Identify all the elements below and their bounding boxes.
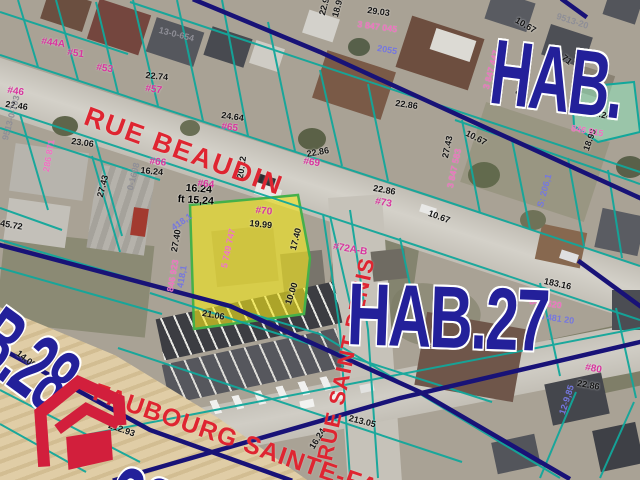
map-annotation: 27.43 [96, 174, 110, 198]
map-annotation: 10.00 [284, 282, 300, 306]
map-annotation: 5 481 20 [539, 312, 575, 326]
street-name-label: RUE SAINT-DENIS [314, 256, 379, 463]
map-annotation: S: 206,1 [536, 173, 554, 208]
building [612, 290, 640, 330]
map-annotation: 3 847 447 [482, 49, 501, 90]
red-house-logo [24, 370, 136, 470]
building [573, 65, 615, 101]
building [249, 40, 285, 72]
map-annotation: 10.67 [464, 129, 488, 147]
map-annotation: 14.09 [14, 349, 37, 370]
map-annotation: 23.06 [71, 137, 95, 149]
map-annotation: 22.46 [5, 100, 29, 112]
map-annotation: 29.03 [367, 6, 391, 18]
map-annotation: 16.24 [140, 166, 163, 177]
vehicle [559, 249, 579, 263]
tree [520, 210, 546, 230]
road-rue-saint-denis [328, 194, 403, 480]
map-annotation: 10.67 [427, 209, 451, 225]
map-annotation: 418,1 [176, 265, 189, 289]
vehicle [254, 182, 282, 201]
zone-label: HAB.27 [346, 270, 550, 365]
map-annotation: #73 [374, 197, 392, 210]
building [484, 0, 535, 32]
map-annotation: 2055 [376, 44, 397, 56]
map-annotation: 10.19 [514, 73, 531, 97]
map-annotation: 27.40 [170, 229, 183, 253]
building [9, 143, 89, 201]
map-annotation: 45.72 [0, 219, 23, 232]
ground-patch [0, 230, 154, 337]
map-annotation: 15.24 [588, 108, 612, 121]
map-annotation: 19.99 [249, 219, 272, 230]
building [211, 225, 279, 287]
map-annotation: 183.16 [543, 277, 572, 292]
map-annotation: 5 749 747 [220, 228, 237, 269]
map-annotation: 22.74 [145, 71, 168, 82]
map-annotation: 16.24 [308, 427, 328, 451]
logo-inner-body [66, 430, 113, 470]
map-annotation: 846 915 [570, 124, 604, 139]
tree [52, 116, 78, 136]
building [544, 372, 609, 425]
building [541, 24, 593, 68]
map-annotation: 21.06 [201, 309, 225, 322]
building [535, 224, 587, 269]
map-annotation: 418,1 [170, 212, 194, 232]
building [312, 50, 396, 120]
map-annotation: 9513-0-703 [1, 95, 22, 142]
map-annotation: 847 620 [529, 297, 562, 310]
map-annotation: #69 [303, 157, 321, 169]
logo-inner-roof [56, 406, 118, 429]
map-annotation: 16.24 [185, 183, 212, 195]
ground-patch [460, 102, 610, 222]
map-annotation: 10.67 [514, 16, 538, 35]
building [594, 208, 640, 256]
building [203, 26, 252, 68]
map-annotation: 12-9,85 [558, 384, 576, 416]
map-annotation: 286 871 [42, 139, 57, 173]
building [3, 198, 70, 248]
tree [348, 38, 370, 56]
map-annotation: #44A [41, 37, 66, 50]
tree [468, 162, 500, 188]
map-annotation: 0-1608 [126, 162, 142, 191]
building [40, 0, 92, 32]
map-annotation: ft 15,24 [177, 194, 214, 207]
map-annotation: 3 847 583 [446, 148, 463, 189]
zone-label: HAB. [486, 26, 628, 133]
map-annotation: 18.91 [331, 0, 346, 18]
map-annotation: 13-0-654 [158, 26, 195, 43]
map-annotation: #46 [7, 86, 25, 98]
building [87, 0, 151, 55]
red-truck [130, 207, 149, 237]
map-annotation: 24.64 [221, 111, 245, 123]
highlighted-parcel [190, 195, 310, 329]
map-annotation: #53 [96, 63, 114, 75]
tree [616, 156, 640, 178]
vehicle [257, 174, 276, 188]
ground-patch [385, 278, 484, 355]
road-faubourg-sainte-famille [55, 314, 640, 480]
building [280, 250, 326, 294]
map-annotation: 22.86 [372, 184, 396, 197]
map-annotation: #66 [149, 157, 167, 169]
ground-patch [324, 231, 420, 334]
building [146, 17, 205, 67]
street-name-label: FAUBOURG SAINTE-FAMILLE [90, 380, 457, 480]
map-annotation: #51 [67, 48, 85, 60]
cadastral-map: 22.4623.0622.7424.6429.0322.9518.9110.67… [0, 0, 640, 480]
map-annotation: 22.86 [576, 379, 600, 392]
vehicle [299, 399, 314, 410]
strip-mall-roof [156, 282, 343, 361]
map-annotation: 9513-20 [555, 12, 589, 31]
parking-lot [162, 328, 344, 404]
map-annotation: 27.43 [441, 135, 454, 159]
map-annotation: #65 [221, 122, 239, 134]
map-annotation: 22.86 [306, 146, 330, 159]
map-annotation: #80 [584, 363, 602, 376]
map-annotation: #72A-B [332, 242, 368, 258]
map-annotation: #64 [197, 179, 215, 191]
map-annotation: #57 [145, 84, 163, 96]
map-annotation: 17.40 [289, 227, 303, 251]
green-parcel [572, 82, 640, 142]
tree [180, 120, 200, 136]
building [592, 422, 640, 472]
map-annotation: 846 923 [166, 259, 181, 293]
vehicle [359, 383, 374, 394]
building [86, 164, 155, 255]
map-annotation: #70 [255, 206, 273, 218]
vehicle [419, 204, 437, 217]
map-annotation: 18.99 [582, 128, 598, 152]
map-annotation: 213.05 [348, 414, 377, 429]
map-annotation: 3 847 045 [357, 20, 398, 34]
building [371, 248, 408, 281]
parked-cars-row [168, 374, 337, 423]
street-name-label: RUE BEAUDIN [81, 103, 287, 200]
map-annotation: 20.12 [236, 156, 248, 180]
ground-patch [549, 322, 640, 402]
tree [298, 128, 326, 150]
building [603, 0, 640, 25]
map-annotation: 22.95 [318, 0, 333, 16]
map-annotation: 22.86 [395, 99, 419, 111]
map-annotation: 11.71 [550, 46, 573, 67]
building [396, 16, 485, 91]
building [414, 312, 525, 402]
road-rue-beaudin [0, 48, 640, 359]
building [491, 434, 541, 474]
building [302, 10, 340, 43]
vehicle [329, 391, 344, 402]
building [430, 28, 477, 62]
